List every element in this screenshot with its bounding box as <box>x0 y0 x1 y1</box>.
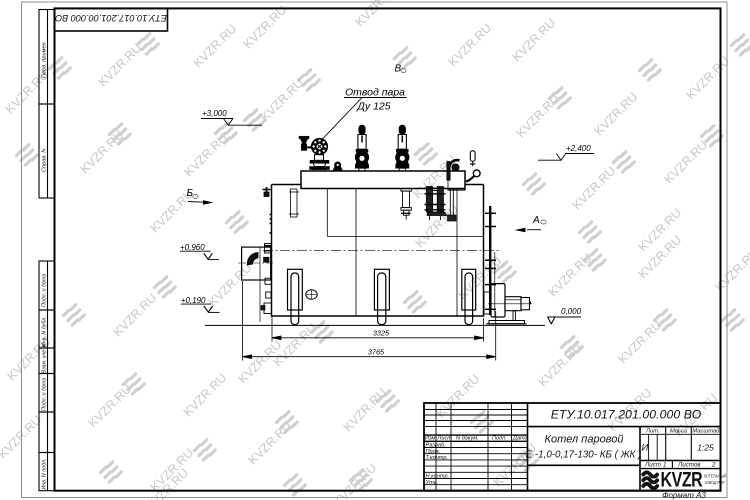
svg-text:Разраб.: Разраб. <box>426 443 446 449</box>
svg-text:КОТЕЛЬНЫЙ: КОТЕЛЬНЫЙ <box>704 473 726 479</box>
svg-text:Перв. примен.: Перв. примен. <box>42 41 48 78</box>
svg-text:0,000: 0,000 <box>561 307 582 316</box>
svg-text:И: И <box>642 443 649 454</box>
svg-text:+0,190: +0,190 <box>181 296 206 305</box>
svg-text:KVZR: KVZR <box>661 467 704 491</box>
svg-text:+0,960: +0,960 <box>180 243 205 252</box>
svg-text:+3,000: +3,000 <box>202 109 227 118</box>
svg-text:Лит.: Лит. <box>645 428 660 434</box>
svg-text:Е -1,0-0,17-130- КБ ( ЖК ): Е -1,0-0,17-130- КБ ( ЖК ) <box>526 450 642 461</box>
svg-text:Ду 125: Ду 125 <box>356 101 390 113</box>
svg-text:Котел паровой: Котел паровой <box>545 433 624 445</box>
svg-text:Инв. N подл.: Инв. N подл. <box>42 459 48 490</box>
svg-text:А: А <box>532 215 540 226</box>
svg-text:Лист: Лист <box>644 462 661 469</box>
svg-text:Подп. и дата: Подп. и дата <box>42 378 48 411</box>
svg-text:2: 2 <box>711 462 716 469</box>
svg-text:Подп. и дата: Подп. и дата <box>42 274 48 307</box>
svg-text:Масштаб: Масштаб <box>692 428 720 434</box>
svg-text:Инв. N дубл.: Инв. N дубл. <box>42 316 48 347</box>
svg-text:3765: 3765 <box>368 348 385 357</box>
svg-text:N докум.: N докум. <box>456 436 479 442</box>
svg-text:Изм.: Изм. <box>425 436 437 442</box>
svg-text:1:25: 1:25 <box>697 443 714 453</box>
svg-text:3325: 3325 <box>373 329 390 338</box>
svg-text:Подп.: Подп. <box>492 436 507 442</box>
svg-text:В: В <box>395 64 402 75</box>
svg-text:Т.контр.: Т.контр. <box>426 455 449 461</box>
svg-text:ЗАВОД РЭП: ЗАВОД РЭП <box>705 479 725 485</box>
svg-text:Утв.: Утв. <box>425 480 439 486</box>
svg-text:Дата: Дата <box>512 436 528 442</box>
svg-text:Взам. инв. N: Взам. инв. N <box>42 343 48 373</box>
svg-text:Масса: Масса <box>670 428 688 434</box>
svg-text:Н.контр.: Н.контр. <box>426 474 450 480</box>
svg-text:Б: Б <box>187 188 194 199</box>
svg-text:Пров.: Пров. <box>426 449 441 455</box>
svg-text:+2,400: +2,400 <box>566 144 591 153</box>
svg-text:ЕТУ.10.017.201.00.000 ВО: ЕТУ.10.017.201.00.000 ВО <box>551 407 702 421</box>
svg-text:Лист: Лист <box>437 436 453 442</box>
svg-text:Формат А3: Формат А3 <box>662 491 706 500</box>
svg-text:ЕТУ.10.017.201.00.000 ВО: ЕТУ.10.017.201.00.000 ВО <box>55 13 167 23</box>
svg-text:Справ. N: Справ. N <box>42 148 48 172</box>
svg-text:Отвод пара: Отвод пара <box>345 87 405 99</box>
